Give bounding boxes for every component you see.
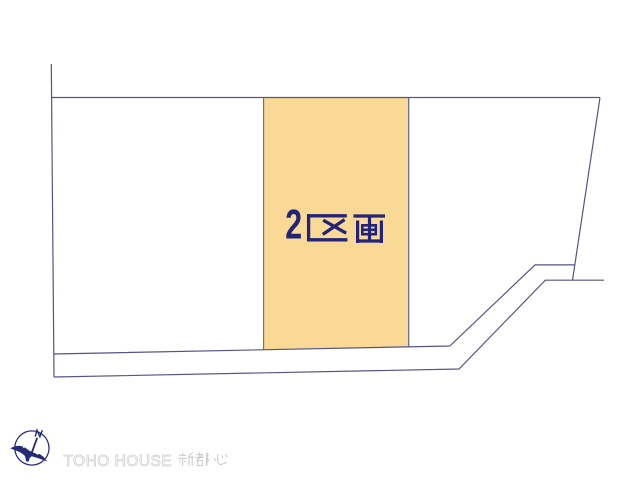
svg-text:TOHO HOUSE: TOHO HOUSE: [63, 453, 172, 470]
svg-text:2: 2: [285, 201, 302, 248]
